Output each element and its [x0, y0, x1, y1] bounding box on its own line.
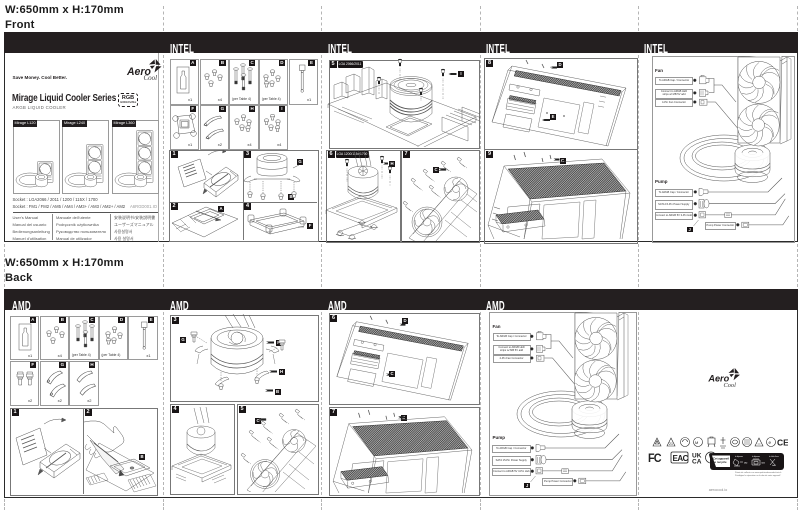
svg-text:se recycle: se recycle: [713, 460, 727, 464]
svg-text:à déposer: à déposer: [752, 456, 760, 458]
svg-text:ou: ou: [744, 461, 748, 465]
svg-text:EAC: EAC: [673, 454, 689, 463]
svg-text:M: M: [695, 440, 698, 445]
svg-text:à côté d'une: à côté d'une: [769, 455, 779, 458]
svg-text:à déposer: à déposer: [735, 456, 743, 458]
svg-text:e: e: [769, 440, 772, 445]
svg-text:Cool: Cool: [144, 74, 158, 82]
svg-text:CE: CE: [777, 438, 788, 448]
svg-text:Cool: Cool: [723, 382, 736, 389]
svg-text:21: 21: [669, 442, 673, 446]
svg-text:Privilégiez la réparation ou l: Privilégiez la réparation ou le don de v…: [735, 474, 782, 477]
svg-text:FC: FC: [648, 453, 661, 466]
svg-text:Points de collecte sur www.que: Points de collecte sur www.quefairedemes…: [735, 471, 782, 474]
svg-text:ou: ou: [762, 461, 766, 465]
svg-text:CA: CA: [692, 459, 702, 466]
